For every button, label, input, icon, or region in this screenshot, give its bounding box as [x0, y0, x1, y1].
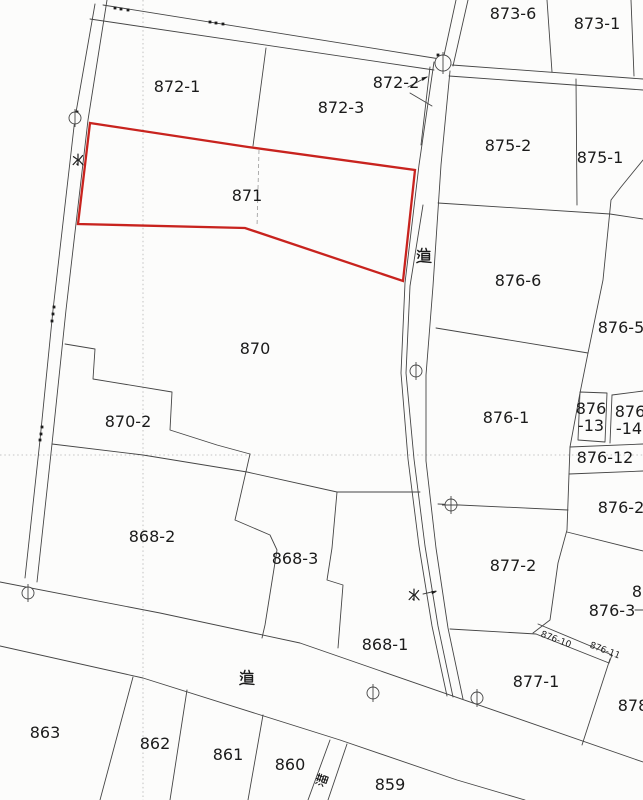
parcel-label--13: -13 [578, 416, 604, 435]
boundary-dot [127, 9, 130, 12]
annotation-水 [73, 154, 83, 165]
boundary-dot [52, 313, 55, 316]
parcel-label-877-1: 877-1 [513, 672, 560, 691]
parcel-label-860: 860 [275, 755, 306, 774]
parcel-label-876-6: 876-6 [495, 271, 542, 290]
parcel-label-877-2: 877-2 [490, 556, 537, 575]
parcel-label-868-2: 868-2 [129, 527, 176, 546]
boundary-dot [41, 426, 44, 429]
parcel-label-861: 861 [213, 745, 244, 764]
cadastral-map: 873-6873-1872-1872-2872-3875-2875-187187… [0, 0, 643, 800]
parcel-label-878: 878 [618, 696, 643, 715]
annotation-水 [409, 589, 419, 600]
parcel-label-875-1: 875-1 [577, 148, 624, 167]
boundary-dot [120, 8, 123, 11]
parcel-label-859: 859 [375, 775, 406, 794]
parcel-label-870-2: 870-2 [105, 412, 152, 431]
parcel-label-872-3: 872-3 [318, 98, 365, 117]
parcel-label-876-10: 876-10 [539, 630, 573, 651]
parcel-label-868-1: 868-1 [362, 635, 409, 654]
parcel-label--14: -14 [616, 419, 642, 438]
cadastral-map-canvas: 873-6873-1872-1872-2872-3875-2875-187187… [0, 0, 643, 800]
parcel-label-876-12: 876-12 [577, 448, 634, 467]
parcel-label-873-1: 873-1 [574, 14, 621, 33]
parcel-label-863: 863 [30, 723, 61, 742]
boundary-dot [222, 23, 225, 26]
parcel-label-876-1: 876-1 [483, 408, 530, 427]
annotation-道 [417, 248, 431, 262]
parcel-label-876-2: 876-2 [598, 498, 643, 517]
parcel-label-876-3: 876-3 [589, 601, 636, 620]
boundary-dot [209, 21, 212, 24]
parcel-label-873-6: 873-6 [490, 4, 537, 23]
boundary-dot [215, 22, 218, 25]
boundary-dot [114, 7, 117, 10]
boundary-dot [51, 320, 54, 323]
survey-markers [22, 52, 483, 707]
parcel-label-875-2: 875-2 [485, 136, 532, 155]
parcel-label-870: 870 [240, 339, 271, 358]
boundary-dot [39, 439, 42, 442]
parcel-labels: 873-6873-1872-1872-2872-3875-2875-187187… [30, 4, 643, 794]
parcel-label-862: 862 [140, 734, 171, 753]
parcel-label-872-2: 872-2 [373, 73, 420, 92]
annotation-道 [240, 670, 254, 684]
boundary-dot [53, 306, 56, 309]
parcel-label-876-5: 876-5 [598, 318, 643, 337]
parcel-label-872-1: 872-1 [154, 77, 201, 96]
parcel-label-871: 871 [232, 186, 263, 205]
parcel-label-868-3: 868-3 [272, 549, 319, 568]
parcel-label-8: 8 [632, 582, 642, 601]
parcel-label-876-11: 876-11 [588, 641, 621, 662]
boundary-dot [40, 433, 43, 436]
